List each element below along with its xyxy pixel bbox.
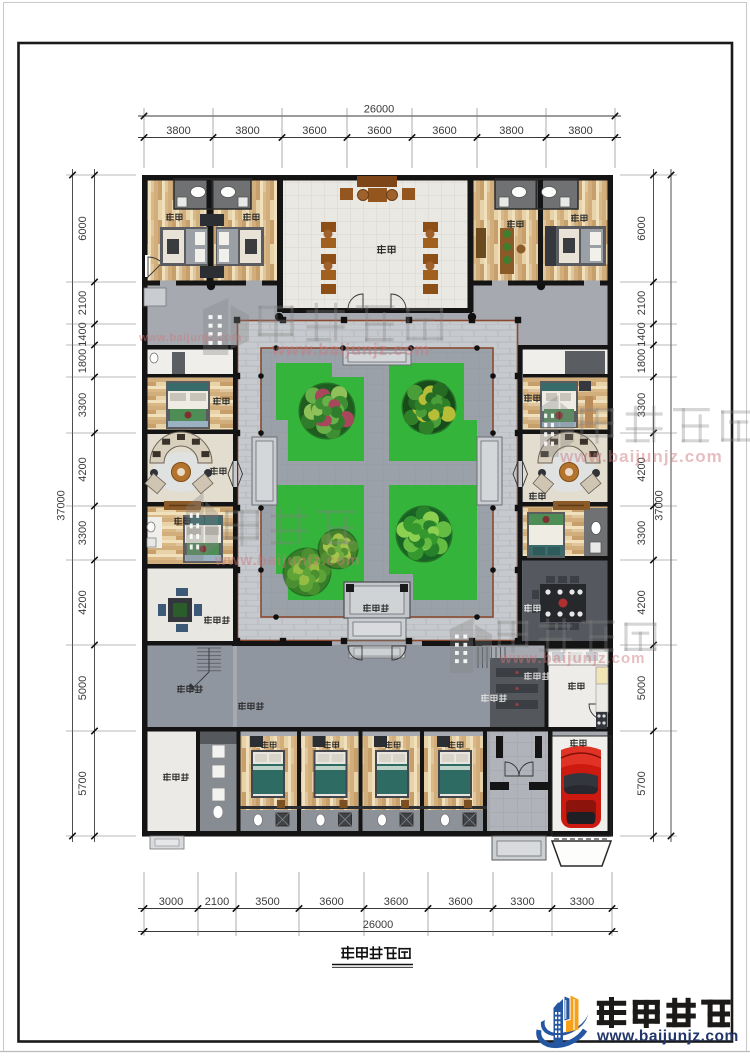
svg-text:4200: 4200	[77, 590, 89, 614]
svg-text:5000: 5000	[636, 676, 648, 700]
svg-text:2100: 2100	[205, 896, 229, 908]
svg-text:37000: 37000	[56, 490, 68, 521]
svg-text:1400: 1400	[77, 322, 89, 346]
svg-text:5700: 5700	[636, 771, 648, 795]
svg-text:3600: 3600	[367, 125, 391, 137]
svg-text:2100: 2100	[636, 291, 648, 315]
svg-text:3500: 3500	[255, 896, 279, 908]
svg-text:www.baijunjz.com: www.baijunjz.com	[499, 650, 645, 667]
svg-text:26000: 26000	[363, 919, 394, 931]
svg-text:3800: 3800	[235, 125, 259, 137]
svg-text:3300: 3300	[77, 521, 89, 545]
svg-text:26000: 26000	[364, 104, 395, 116]
svg-text:3600: 3600	[384, 896, 408, 908]
svg-text:www.baijunjz.com: www.baijunjz.com	[596, 1028, 739, 1045]
svg-text:3300: 3300	[510, 896, 534, 908]
svg-text:6000: 6000	[636, 216, 648, 240]
svg-text:3300: 3300	[77, 393, 89, 417]
svg-text:1800: 1800	[77, 349, 89, 373]
svg-text:5700: 5700	[77, 771, 89, 795]
svg-text:3600: 3600	[319, 896, 343, 908]
svg-text:1400: 1400	[636, 322, 648, 346]
svg-text:3600: 3600	[432, 125, 456, 137]
svg-text:3800: 3800	[499, 125, 523, 137]
svg-text:3000: 3000	[159, 896, 183, 908]
svg-text:3800: 3800	[568, 125, 592, 137]
svg-text:4200: 4200	[636, 590, 648, 614]
svg-text:www.baijunjz.com: www.baijunjz.com	[138, 332, 242, 344]
svg-text:3300: 3300	[636, 521, 648, 545]
svg-text:www.baijunjz.com: www.baijunjz.com	[271, 341, 430, 359]
svg-text:3600: 3600	[302, 125, 326, 137]
svg-text:3800: 3800	[166, 125, 190, 137]
svg-text:www.baijunjz.com: www.baijunjz.com	[214, 552, 360, 569]
svg-text:6000: 6000	[77, 216, 89, 240]
svg-text:5000: 5000	[77, 676, 89, 700]
svg-text:2100: 2100	[77, 291, 89, 315]
svg-text:1800: 1800	[636, 349, 648, 373]
svg-text:www.baijunjz.com: www.baijunjz.com	[559, 447, 723, 466]
svg-text:3300: 3300	[570, 896, 594, 908]
svg-text:4200: 4200	[77, 457, 89, 481]
svg-text:37000: 37000	[654, 490, 666, 521]
svg-text:3600: 3600	[448, 896, 472, 908]
